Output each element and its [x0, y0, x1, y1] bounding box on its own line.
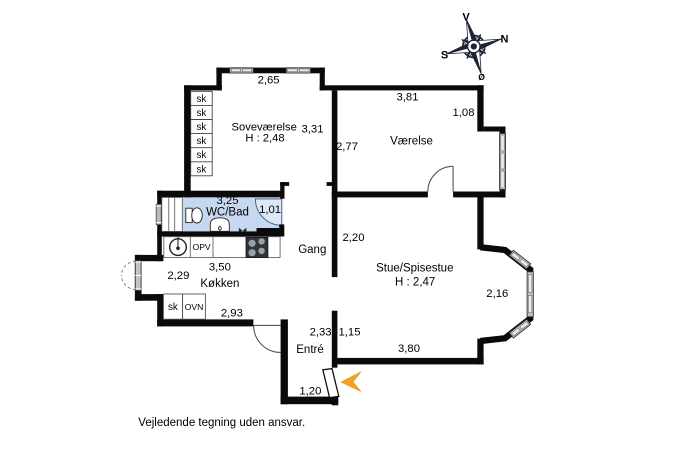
svg-text:WC/Bad: WC/Bad	[206, 206, 249, 218]
svg-text:1,20: 1,20	[299, 386, 321, 398]
svg-text:1,15: 1,15	[339, 326, 361, 338]
svg-text:3,50: 3,50	[209, 261, 231, 273]
svg-text:sk: sk	[197, 108, 207, 119]
svg-text:Ø: Ø	[478, 72, 485, 82]
svg-text:Værelse: Værelse	[390, 135, 433, 147]
svg-text:Gang: Gang	[298, 244, 326, 256]
svg-text:sk: sk	[168, 302, 178, 313]
svg-text:OPV: OPV	[193, 242, 211, 252]
svg-text:V: V	[462, 11, 470, 23]
svg-text:sk: sk	[197, 150, 207, 161]
svg-text:Køkken: Køkken	[200, 278, 239, 290]
svg-text:2,65: 2,65	[258, 74, 280, 86]
svg-text:2,33: 2,33	[310, 326, 332, 338]
svg-text:2,20: 2,20	[343, 232, 365, 244]
svg-text:Entré: Entré	[296, 344, 324, 356]
svg-text:S: S	[441, 49, 448, 61]
svg-text:H : 2,48: H : 2,48	[245, 132, 284, 144]
svg-text:sk: sk	[197, 164, 207, 175]
svg-text:2,93: 2,93	[221, 308, 243, 320]
svg-text:N: N	[501, 34, 509, 46]
svg-text:2,16: 2,16	[486, 288, 508, 300]
svg-text:Stue/Spisestue: Stue/Spisestue	[376, 263, 453, 275]
svg-text:sk: sk	[197, 122, 207, 133]
svg-text:3,80: 3,80	[398, 343, 420, 355]
svg-text:3,25: 3,25	[217, 195, 239, 207]
svg-text:3,81: 3,81	[397, 92, 419, 104]
svg-text:H : 2,47: H : 2,47	[395, 277, 435, 289]
svg-text:3,31: 3,31	[302, 124, 324, 136]
svg-text:2,29: 2,29	[167, 270, 189, 282]
svg-text:Vejledende tegning uden ansvar: Vejledende tegning uden ansvar.	[138, 417, 305, 429]
svg-text:1,01: 1,01	[259, 204, 281, 216]
svg-text:OVN: OVN	[185, 302, 204, 312]
svg-text:sk: sk	[197, 94, 207, 105]
svg-text:1,08: 1,08	[453, 107, 475, 119]
svg-text:2,77: 2,77	[336, 141, 358, 153]
svg-text:sk: sk	[197, 136, 207, 147]
